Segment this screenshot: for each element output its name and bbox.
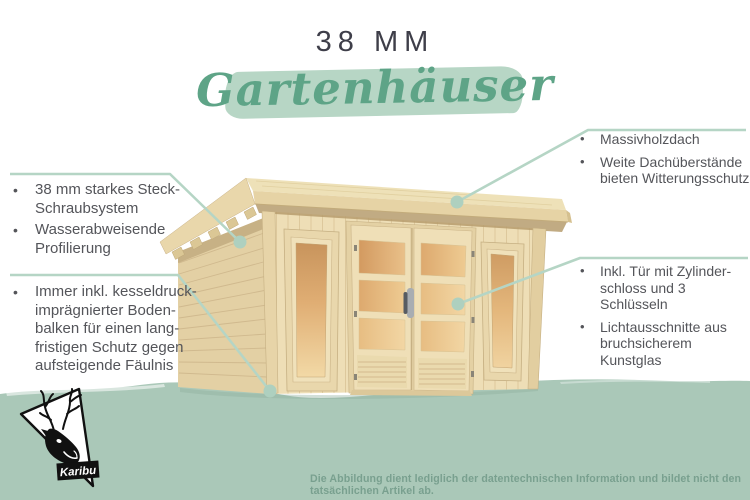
callout-dot-left-top <box>234 236 247 249</box>
feature-text: Wasserabweisende Profilierung <box>35 221 165 258</box>
feature-list-right-top: • Massivholzdach • Weite Dachüberstände … <box>580 131 750 193</box>
garden-house-illustration <box>160 178 572 400</box>
bullet-icon: • <box>580 263 600 280</box>
svg-text:Karibu: Karibu <box>59 465 96 480</box>
door-threshold <box>350 390 472 396</box>
bullet-icon: • <box>13 221 35 240</box>
bullet-icon: • <box>580 154 600 171</box>
feature-text: 38 mm starkes Steck- Schraubsystem <box>35 181 180 218</box>
feature-text: Inkl. Tür mit Zylinder- schloss und 3 Sc… <box>600 263 750 313</box>
bullet-icon: • <box>13 181 35 200</box>
feature-list-right-bottom: • Inkl. Tür mit Zylinder- schloss und 3 … <box>580 263 750 374</box>
callout-dot-left-bottom <box>264 385 277 398</box>
feature-item: • Massivholzdach <box>580 131 750 148</box>
feature-item: • Inkl. Tür mit Zylinder- schloss und 3 … <box>580 263 750 313</box>
feature-item: • 38 mm starkes Steck- Schraubsystem <box>13 181 213 218</box>
feature-list-left-bottom: • Immer inkl. kesseldruck- imprägnierter… <box>13 283 213 379</box>
page-title: 38 MM <box>0 26 750 59</box>
bullet-icon: • <box>580 319 600 336</box>
feature-item: • Lichtausschnitte aus bruchsicherem Kun… <box>580 319 750 369</box>
door-handle-icon <box>404 288 415 318</box>
callout-dot-right-bottom <box>452 298 465 311</box>
feature-text: Massivholzdach <box>600 131 700 148</box>
feature-text: Lichtausschnitte aus bruchsicherem Kunst… <box>600 319 750 369</box>
house-right-window <box>481 242 524 381</box>
bullet-icon: • <box>13 283 35 302</box>
feature-text: Immer inkl. kesseldruck- imprägnierter B… <box>35 283 197 376</box>
feature-item: • Wasserabweisende Profilierung <box>13 221 213 258</box>
feature-list-left-top: • 38 mm starkes Steck- Schraubsystem • W… <box>13 181 213 261</box>
feature-text: Weite Dachüberstände bieten Witterungssc… <box>600 154 749 187</box>
feature-item: • Immer inkl. kesseldruck- imprägnierter… <box>13 283 213 376</box>
house-left-window <box>284 229 339 391</box>
callout-dot-right-top <box>451 196 464 209</box>
feature-item: • Weite Dachüberstände bieten Witterungs… <box>580 154 750 187</box>
logo-wordmark: Karibu <box>56 461 99 481</box>
disclaimer-text: Die Abbildung dient lediglich der datent… <box>310 473 750 497</box>
bullet-icon: • <box>580 131 600 148</box>
